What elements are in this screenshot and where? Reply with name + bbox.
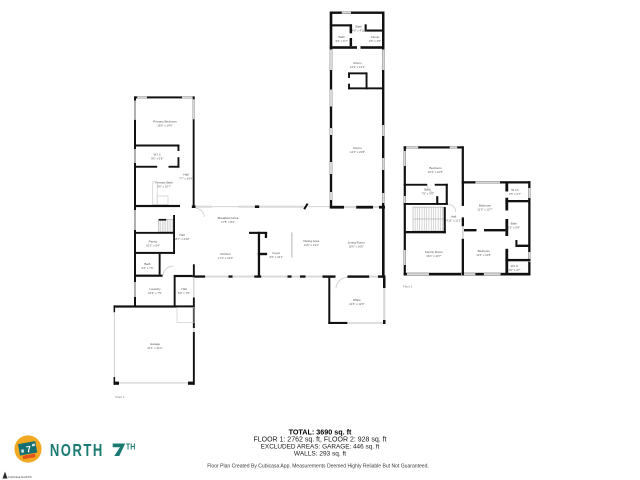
svg-text:14'9" x 14'1": 14'9" x 14'1" — [304, 243, 319, 247]
svg-text:9'5" x 5'8": 9'5" x 5'8" — [151, 157, 163, 161]
svg-text:10'4" x 7'9": 10'4" x 7'9" — [148, 291, 162, 295]
svg-text:4'10" x 11'1": 4'10" x 11'1" — [446, 219, 461, 223]
svg-text:7'7" x 16'4": 7'7" x 16'4" — [179, 177, 193, 181]
svg-text:TOTAL: 3690 sq. ft: TOTAL: 3690 sq. ft — [289, 427, 352, 436]
svg-text:16'7" x 4'10": 16'7" x 4'10" — [174, 237, 189, 241]
svg-text:6'0" x 16'1": 6'0" x 16'1" — [270, 255, 284, 259]
svg-text:WALLS: 293 sq. ft: WALLS: 293 sq. ft — [294, 451, 346, 458]
svg-text:4'6" x 4'9": 4'6" x 4'9" — [369, 39, 381, 43]
svg-text:11'5" x 10'6": 11'5" x 10'6" — [476, 253, 491, 257]
svg-text:EXCLUDED AREAS: GARAGE: 446 sq: EXCLUDED AREAS: GARAGE: 446 sq. ft — [261, 444, 380, 451]
svg-text:4'0" x 4'11": 4'0" x 4'11" — [352, 28, 366, 32]
svg-text:17'1" x 13'0": 17'1" x 13'0" — [218, 256, 233, 260]
svg-text:6'4" x 7'6": 6'4" x 7'6" — [141, 266, 153, 270]
svg-text:10'2" x 5'4": 10'2" x 5'4" — [146, 244, 160, 248]
svg-text:9'9" x 10'7": 9'9" x 10'7" — [157, 185, 171, 189]
svg-text:FLOOR 1: 2762 sq. ft, FLOOR 2:: FLOOR 1: 2762 sq. ft, FLOOR 2: 928 sq. f… — [253, 436, 386, 443]
svg-text:14'6" x 12'0": 14'6" x 12'0" — [349, 302, 364, 306]
svg-text:16'4" x 10'5": 16'4" x 10'5" — [428, 170, 443, 174]
svg-text:16'6" x 14'9": 16'6" x 14'9" — [157, 124, 172, 128]
svg-text:4'5" x 6'7": 4'5" x 6'7" — [509, 192, 521, 196]
svg-text:16'6" x 16'0": 16'6" x 16'0" — [349, 245, 364, 249]
svg-text:4'6" x 4'7": 4'6" x 4'7" — [508, 268, 520, 272]
svg-text:17'8" x 8'4": 17'8" x 8'4" — [221, 220, 235, 224]
svg-text:Floor Plan Created By Cubicasa: Floor Plan Created By Cubicasa App. Meas… — [207, 464, 429, 470]
svg-text:6'5" x 9'9": 6'5" x 9'9" — [508, 225, 520, 229]
svg-text:NORTH: NORTH — [50, 441, 104, 460]
svg-text:CubiCasa North7th: CubiCasa North7th — [8, 475, 32, 479]
svg-text:Floor 2: Floor 2 — [403, 285, 413, 289]
svg-text:16'4" x 13'7": 16'4" x 13'7" — [426, 254, 441, 258]
svg-text:14'2" x 23'8": 14'2" x 23'8" — [350, 150, 365, 154]
svg-text:TH: TH — [126, 442, 136, 452]
svg-text:14'3" x 13'1": 14'3" x 13'1" — [350, 65, 365, 69]
svg-text:Floor 1: Floor 1 — [115, 395, 125, 399]
svg-text:21'1" x 21'1": 21'1" x 21'1" — [147, 346, 162, 350]
svg-text:11'5" x 12'7": 11'5" x 12'7" — [477, 207, 492, 211]
svg-text:5'2" x 6'7": 5'2" x 6'7" — [336, 39, 348, 43]
svg-text:6'0" x 7'9": 6'0" x 7'9" — [178, 291, 190, 295]
